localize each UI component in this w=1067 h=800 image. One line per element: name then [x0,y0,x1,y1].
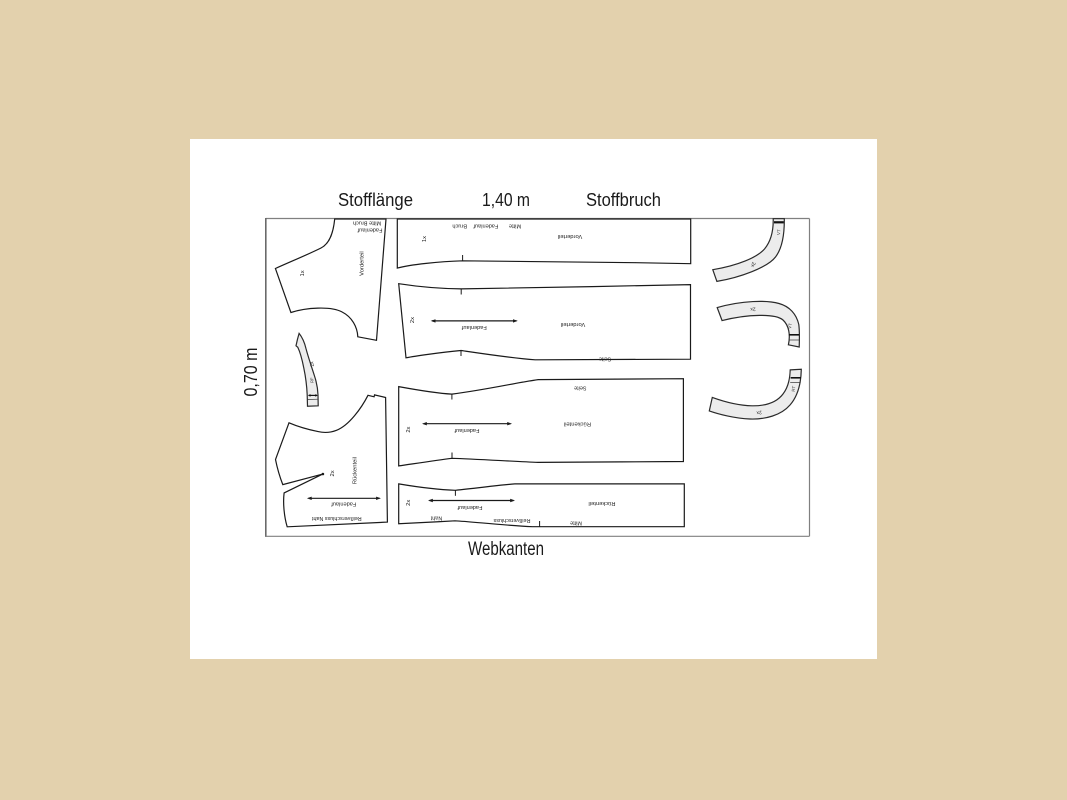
svg-text:Rückenteil: Rückenteil [564,421,591,427]
svg-text:Mitte: Mitte [570,519,582,525]
svg-text:2x: 2x [406,426,412,432]
svg-text:Rückenteil: Rückenteil [353,457,359,484]
svg-text:1x: 1x [422,236,428,242]
svg-text:Fadenlauf: Fadenlauf [457,504,482,510]
svg-text:Reißverschluss Naht: Reißverschluss Naht [311,515,361,521]
svg-text:RT: RT [791,385,797,392]
svg-text:2x: 2x [330,470,336,476]
svg-text:Reißverschluss: Reißverschluss [493,517,530,523]
svg-text:1,40 m: 1,40 m [482,190,530,210]
svg-text:Fadenlauf: Fadenlauf [461,324,486,330]
svg-text:Rückenteil: Rückenteil [588,500,615,506]
svg-text:Seite: Seite [599,355,611,361]
svg-text:2x: 2x [750,305,756,311]
svg-text:Fadenlauf: Fadenlauf [357,227,382,233]
svg-text:Seite: Seite [574,384,586,390]
svg-text:Vorderteil: Vorderteil [558,233,583,239]
svg-text:2x: 2x [410,317,416,323]
svg-text:Stoffbruch: Stoffbruch [586,190,661,210]
svg-text:Fadenlauf: Fadenlauf [473,223,498,229]
svg-text:Vorderteil: Vorderteil [561,321,586,327]
svg-text:Stofflänge: Stofflänge [338,190,413,210]
svg-text:VT: VT [776,229,781,235]
svg-text:2x: 2x [406,500,412,506]
svg-text:Vorderteil: Vorderteil [360,251,366,276]
svg-text:Bruch: Bruch [452,223,467,229]
svg-text:Mitte Bruch: Mitte Bruch [353,220,381,226]
svg-text:0,70 m: 0,70 m [241,348,261,397]
svg-text:RF: RF [309,377,315,383]
svg-text:Fadenlauf: Fadenlauf [331,501,356,507]
svg-text:Mitte: Mitte [509,223,521,229]
svg-text:Fadenlauf: Fadenlauf [454,427,479,433]
svg-text:Naht: Naht [430,514,442,520]
svg-text:Webkanten: Webkanten [468,539,544,560]
svg-text:1x: 1x [300,270,306,276]
